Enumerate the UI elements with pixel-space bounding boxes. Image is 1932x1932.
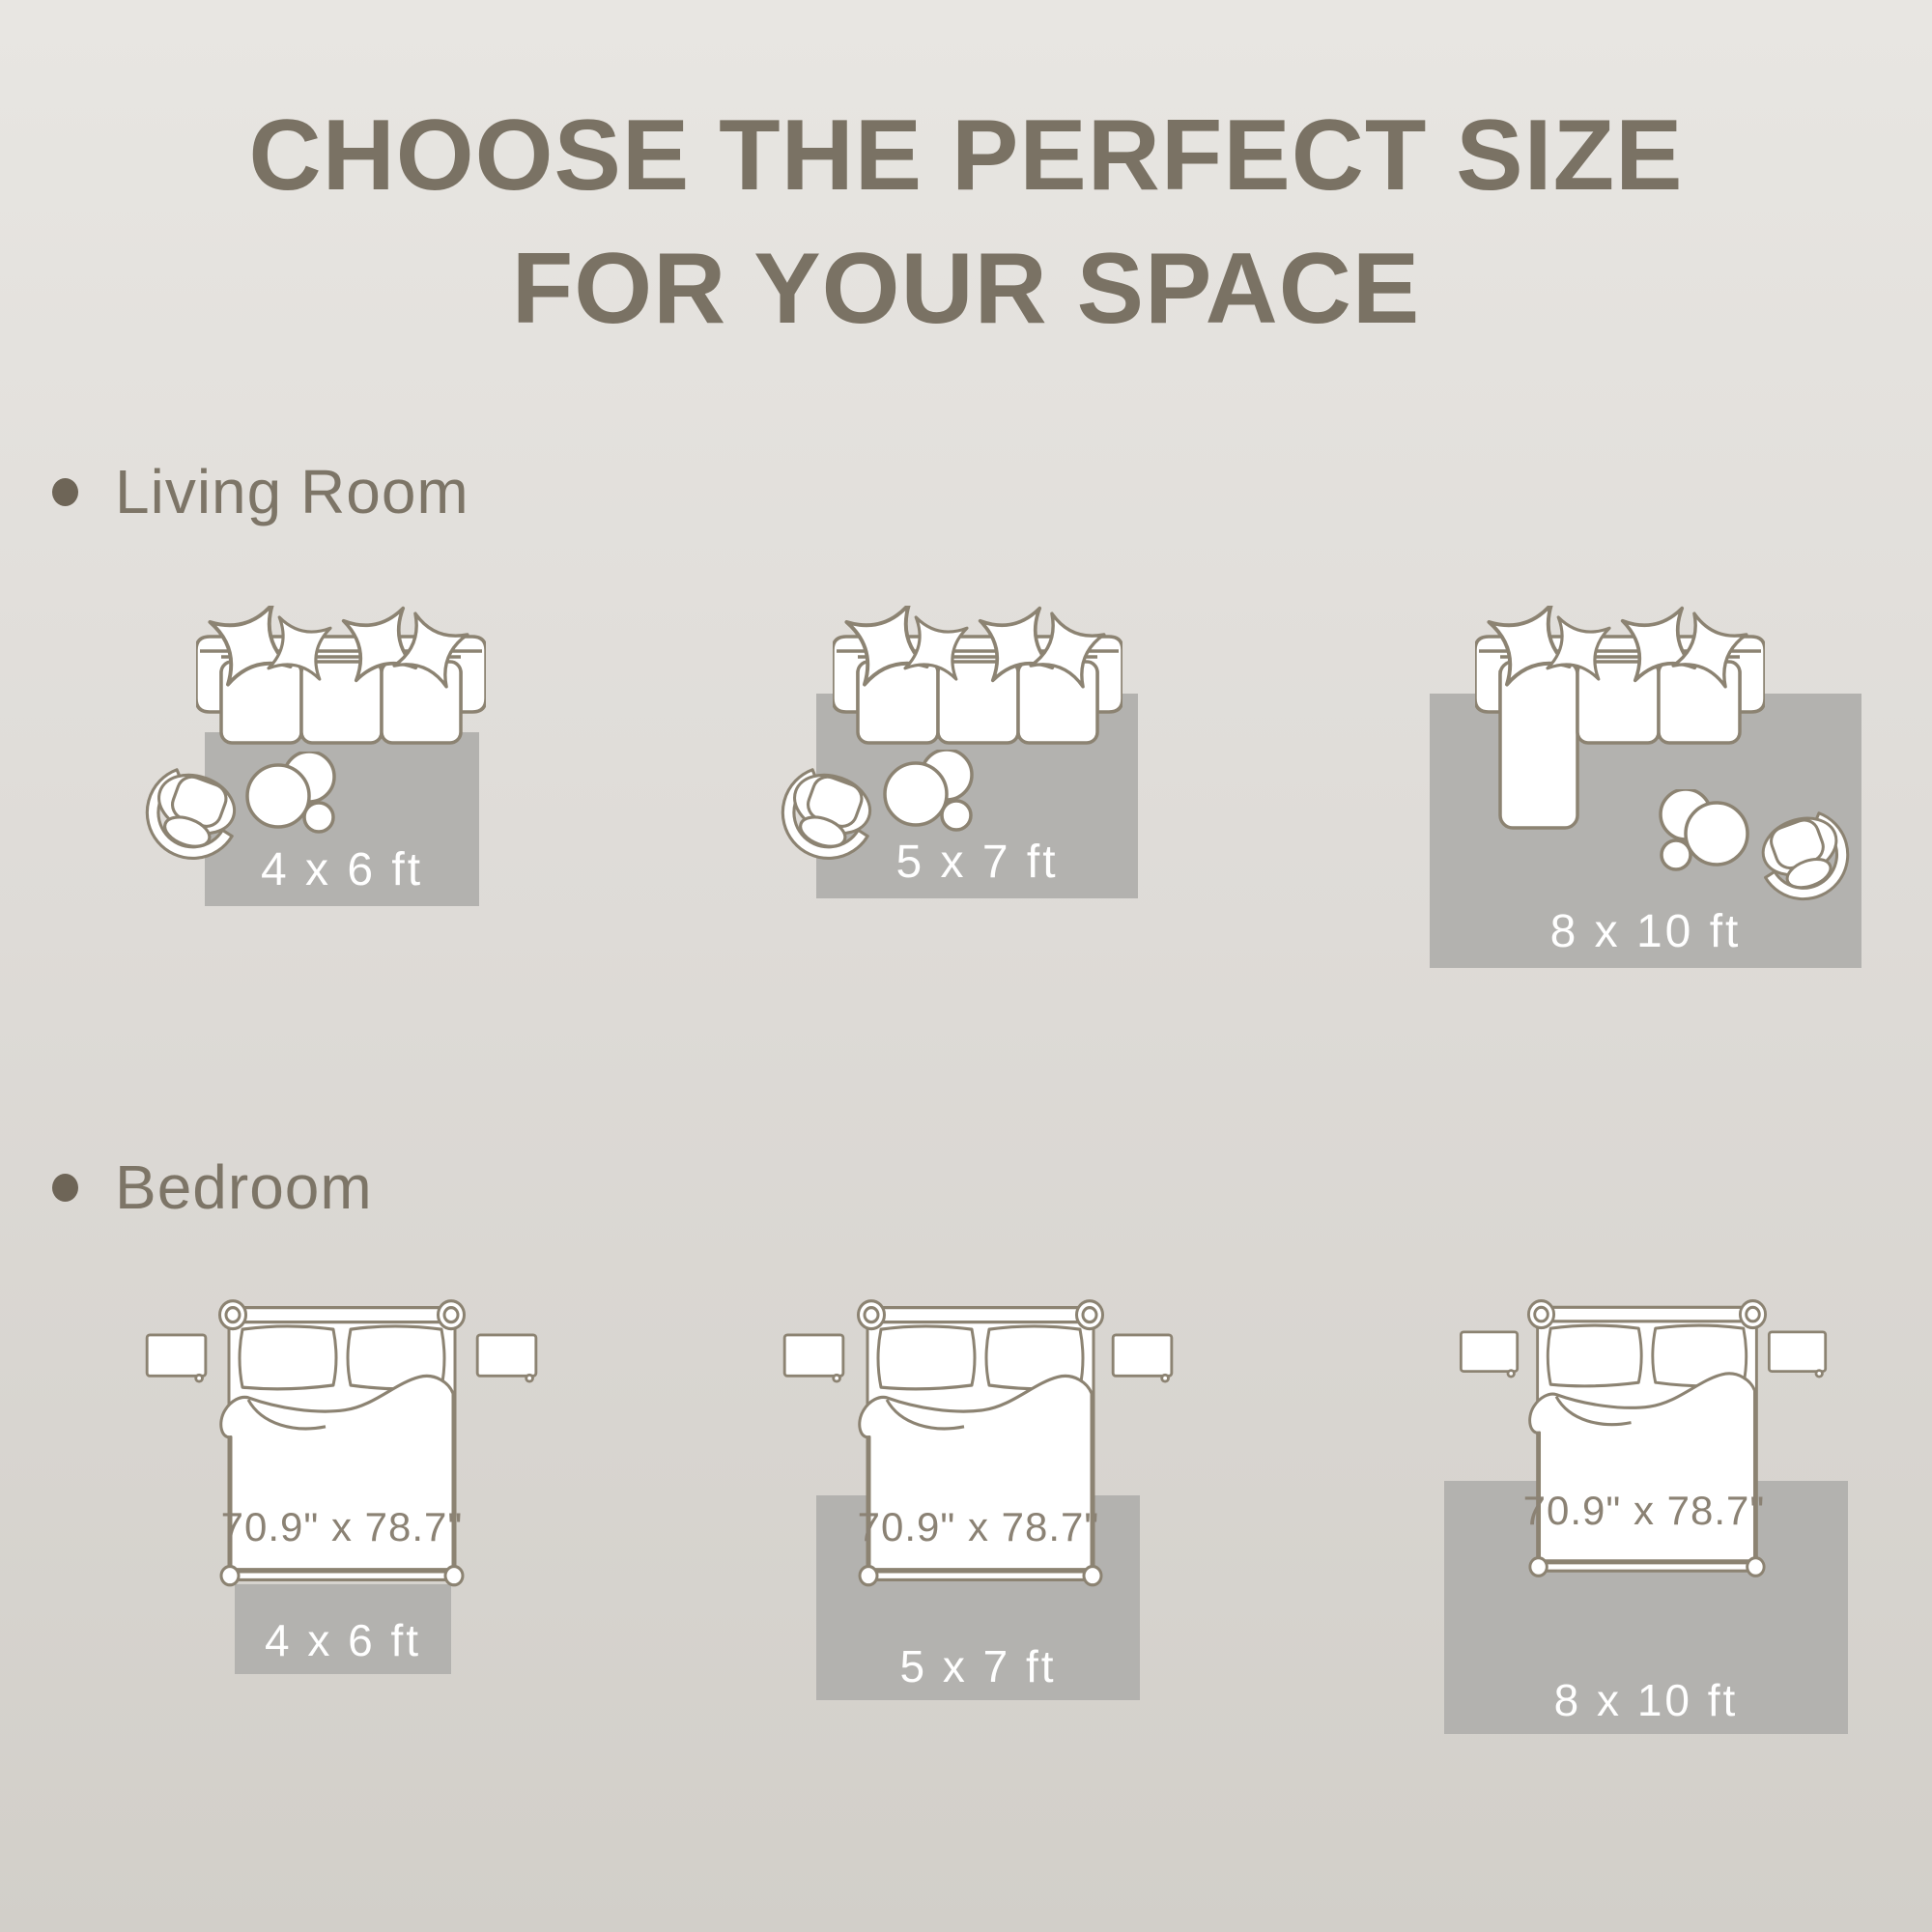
nightstand-icon (145, 1333, 209, 1383)
bullet-icon (52, 478, 78, 506)
nightstand-icon (1111, 1333, 1175, 1383)
nightstand-icon (1767, 1330, 1829, 1378)
rug-size-label: 8 x 10 ft (1554, 1674, 1739, 1734)
bullet-icon (52, 1174, 78, 1202)
title-line-2: FOR YOUR SPACE (0, 222, 1932, 355)
page-title: CHOOSE THE PERFECT SIZE FOR YOUR SPACE (0, 89, 1932, 355)
section-label-text: Living Room (115, 456, 469, 527)
coffee-table-icon (883, 750, 976, 833)
title-line-1: CHOOSE THE PERFECT SIZE (0, 89, 1932, 222)
nightstand-icon (782, 1333, 846, 1383)
rug-size-label: 5 x 7 ft (895, 836, 1058, 898)
section-label-text: Bedroom (115, 1151, 373, 1223)
rug-size-label: 5 x 7 ft (899, 1640, 1056, 1700)
armchair-icon (781, 768, 877, 865)
armchair-icon (1756, 811, 1850, 905)
bed-icon (217, 1298, 467, 1603)
armchair-icon (145, 768, 241, 865)
bed-icon (856, 1298, 1105, 1603)
rug-size-label: 8 x 10 ft (1550, 905, 1742, 968)
bed-icon (1526, 1298, 1768, 1593)
coffee-table-icon (245, 752, 338, 835)
nightstand-icon (475, 1333, 539, 1383)
bed-size-label: 70.9" x 78.7" (1499, 1488, 1789, 1534)
nightstand-icon (1459, 1330, 1520, 1378)
bed-size-label: 70.9" x 78.7" (834, 1504, 1123, 1550)
size-guide-infographic: CHOOSE THE PERFECT SIZE FOR YOUR SPACE L… (0, 0, 1932, 1932)
section-living-room: Living Room (52, 456, 469, 527)
coffee-table-icon (1657, 789, 1749, 872)
bed-size-label: 70.9" x 78.7" (197, 1504, 487, 1550)
rug-size-label: 4 x 6 ft (261, 843, 423, 906)
rug-size-label: 4 x 6 ft (265, 1614, 421, 1674)
section-bedroom: Bedroom (52, 1151, 373, 1223)
sofa-icon (196, 575, 486, 747)
sofa-icon (833, 575, 1122, 747)
sectional-sofa-icon (1475, 575, 1765, 802)
